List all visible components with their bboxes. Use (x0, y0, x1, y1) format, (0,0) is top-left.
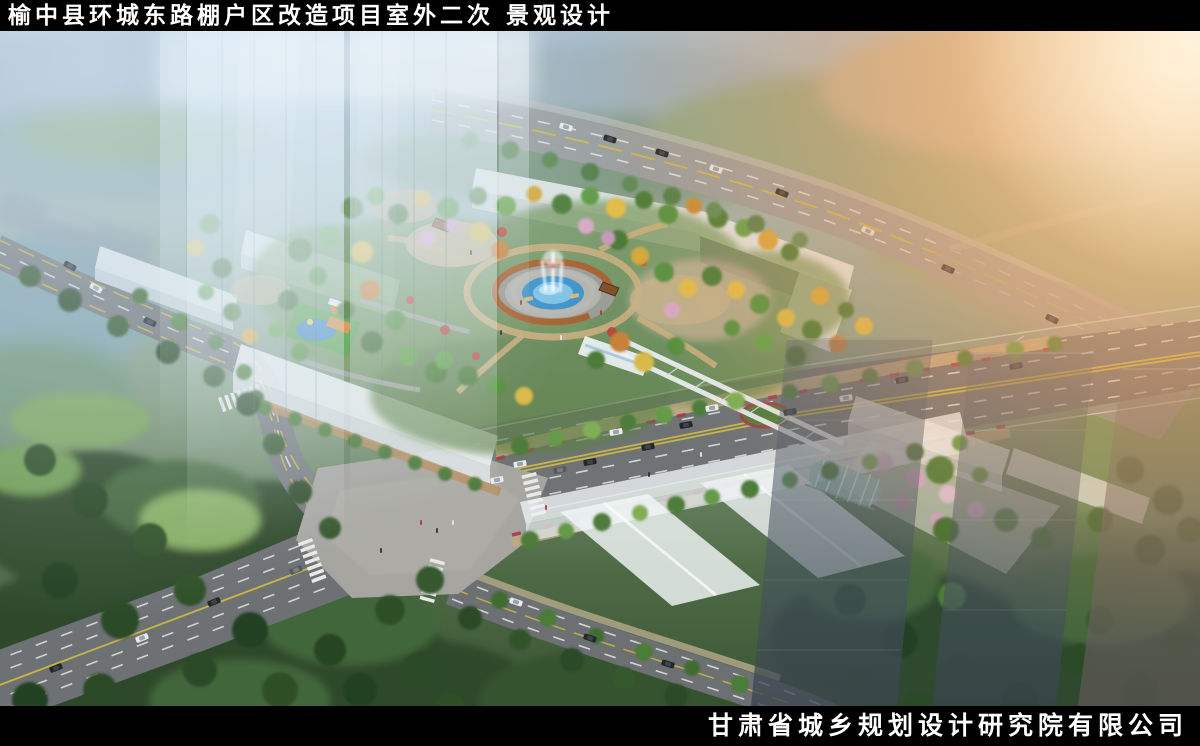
company-name: 甘肃省城乡规划设计研究院有限公司 (708, 711, 1188, 740)
project-title: 榆中县环城东路棚户区改造项目室外二次 景观设计 (8, 2, 614, 29)
light-overlays (0, 31, 1200, 706)
poster-frame: 榆中县环城东路棚户区改造项目室外二次 景观设计 (0, 0, 1200, 746)
aerial-rendering (0, 31, 1200, 706)
aerial-rendering-svg (0, 31, 1200, 706)
credit-bar: 甘肃省城乡规划设计研究院有限公司 (0, 706, 1200, 746)
title-bar: 榆中县环城东路棚户区改造项目室外二次 景观设计 (0, 0, 1200, 31)
sunlight-core (0, 31, 1200, 706)
